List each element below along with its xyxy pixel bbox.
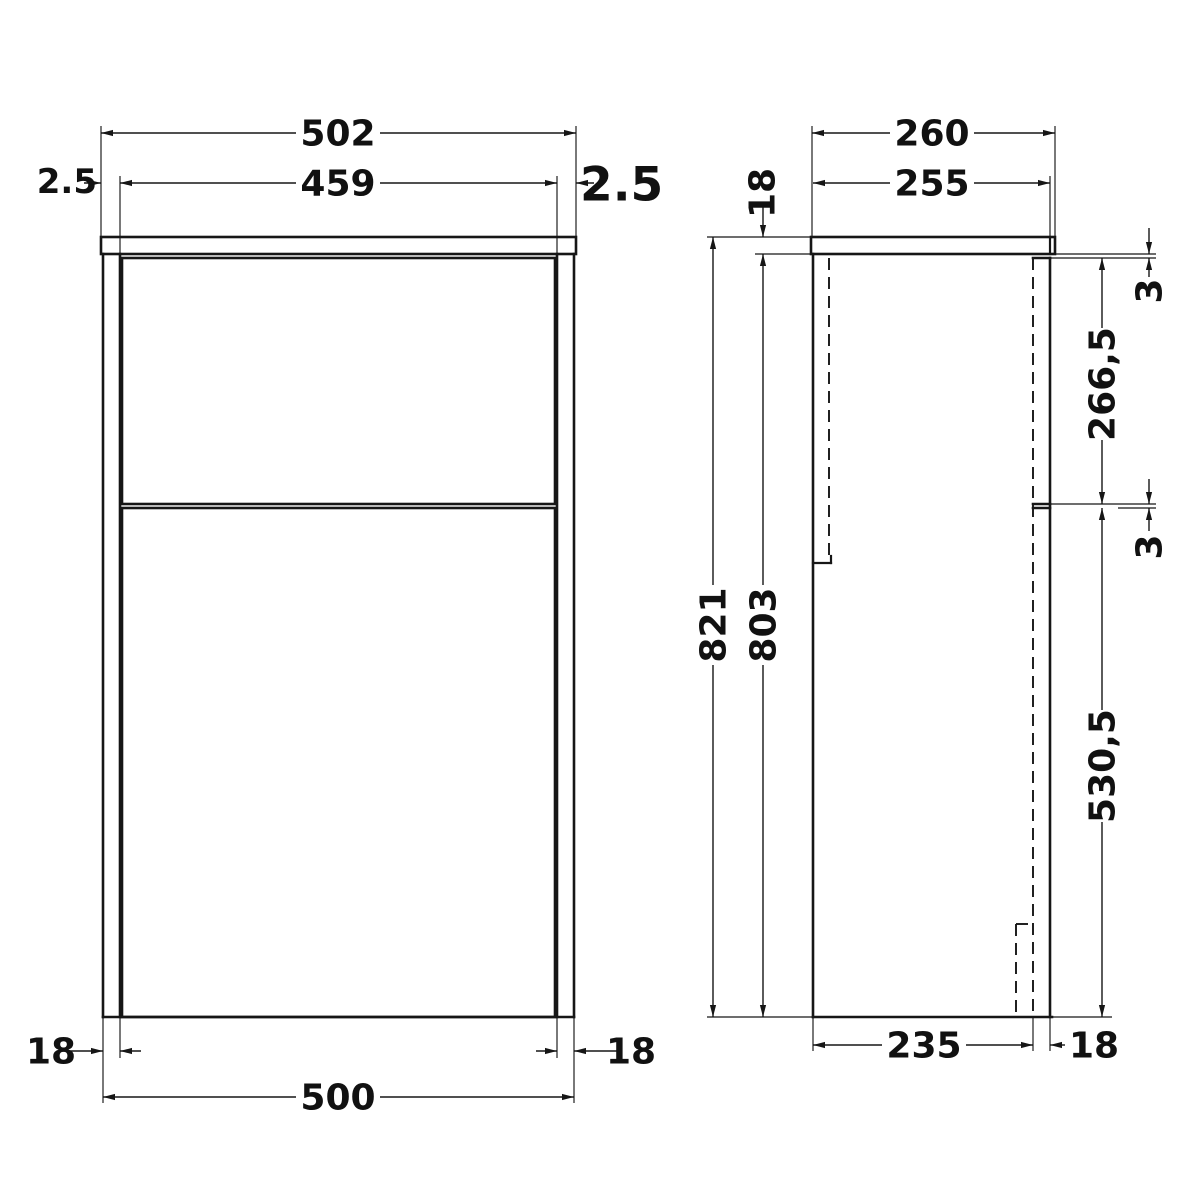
drawing-canvas: 502 459 2.5 2.5 18 18 500 xyxy=(0,0,1200,1200)
dim-side-carcass-height: 803 xyxy=(744,587,785,662)
side-dimension-labels: 260 255 18 821 803 266,5 3 3 xyxy=(694,114,1171,1067)
dim-side-mid-gap: 3 xyxy=(1130,534,1171,559)
front-view: 502 459 2.5 2.5 18 18 500 xyxy=(26,114,663,1119)
dim-side-depth-to-door-front: 255 xyxy=(894,164,969,205)
dim-front-carcass-width: 500 xyxy=(300,1078,375,1119)
side-view: 260 255 18 821 803 266,5 3 3 xyxy=(694,114,1171,1067)
dim-side-carcass-depth: 235 xyxy=(886,1026,961,1067)
dim-front-panel-right: 18 xyxy=(606,1032,656,1073)
side-outline xyxy=(813,254,1052,1017)
dim-side-overall-height: 821 xyxy=(694,587,735,662)
side-worktop xyxy=(811,237,1055,254)
front-dimension-lines xyxy=(58,133,619,1097)
side-hidden-lines xyxy=(829,258,1033,1017)
front-extension-lines xyxy=(101,126,576,1103)
technical-drawing: 502 459 2.5 2.5 18 18 500 xyxy=(0,0,1200,1200)
front-lower-door xyxy=(122,508,555,1017)
dim-side-door-thickness: 18 xyxy=(1069,1026,1119,1067)
dim-side-upper-door-height: 266,5 xyxy=(1083,327,1124,441)
dim-side-top-gap: 3 xyxy=(1130,278,1171,303)
front-upper-door xyxy=(122,258,555,504)
front-doors xyxy=(122,258,555,1017)
front-worktop xyxy=(101,237,576,254)
front-carcass-outline xyxy=(103,254,574,1017)
dim-front-door-width: 459 xyxy=(300,164,375,205)
dim-side-worktop-thickness: 18 xyxy=(743,168,784,218)
dim-front-worktop-width: 502 xyxy=(300,114,375,155)
dim-side-worktop-depth: 260 xyxy=(894,114,969,155)
dim-side-lower-door-height: 530,5 xyxy=(1083,709,1124,823)
dim-front-gap-right: 2.5 xyxy=(580,157,663,212)
dim-front-panel-left: 18 xyxy=(26,1032,76,1073)
dim-front-gap-left: 2.5 xyxy=(37,162,97,202)
